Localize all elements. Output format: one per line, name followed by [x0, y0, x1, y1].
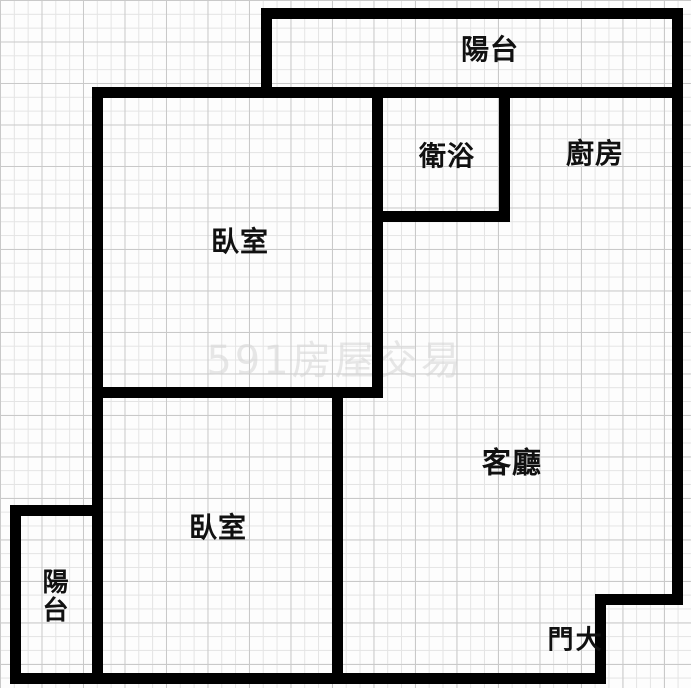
- wall-bottom: [10, 673, 606, 684]
- wall-bedroom-bathroom-divider: [372, 87, 383, 398]
- wall-main-top: [92, 87, 683, 98]
- room-label-balcony-lower: 陽台: [39, 568, 67, 624]
- wall-lower-balcony-top: [10, 505, 103, 516]
- wall-top-balcony-left: [261, 8, 272, 98]
- room-label-balcony-top: 陽台: [461, 35, 519, 65]
- watermark-text: 591房屋交易: [206, 328, 463, 386]
- wall-entry-step-top: [595, 594, 683, 605]
- floor-plan: 591房屋交易 陽台 衛浴 廚房 臥室 臥室 客廳 陽台 大門: [0, 0, 691, 688]
- room-label-living-room: 客廳: [482, 447, 542, 478]
- wall-bathroom-bottom: [372, 211, 510, 222]
- room-label-bedroom-lower: 臥室: [189, 513, 247, 543]
- room-label-main-door: 大門: [544, 615, 600, 664]
- wall-left: [92, 87, 103, 684]
- wall-bathroom-right: [499, 87, 510, 222]
- wall-top-balcony-top: [261, 8, 683, 19]
- room-label-bedroom-upper: 臥室: [211, 227, 269, 257]
- room-label-bathroom: 衛浴: [419, 142, 475, 171]
- wall-lower-balcony-left: [10, 505, 21, 684]
- wall-living-bedroom-divider: [332, 387, 343, 684]
- room-label-kitchen: 廚房: [566, 139, 624, 169]
